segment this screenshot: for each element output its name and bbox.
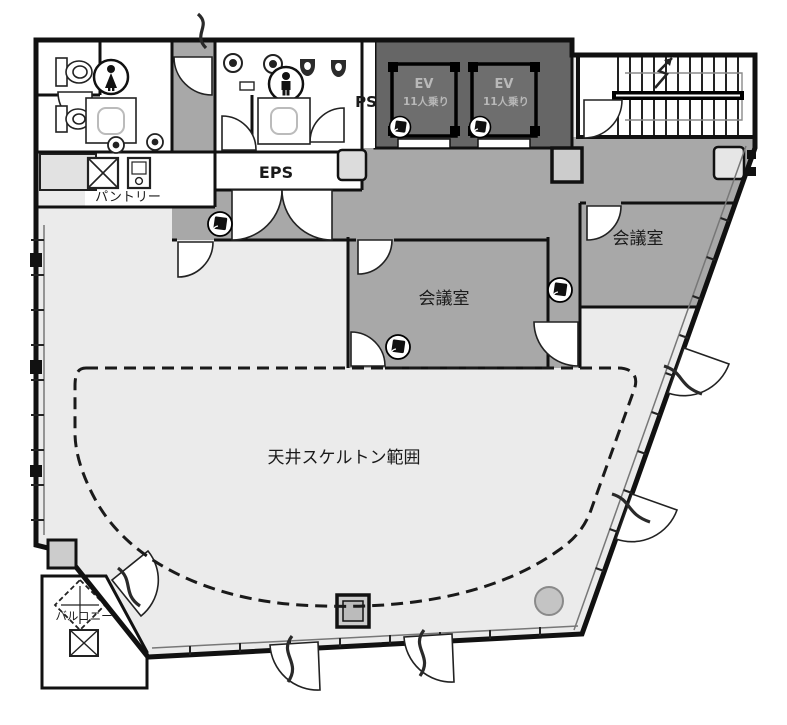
sink-icon [147,134,163,150]
dumbwaiter-box [88,158,118,188]
ps-label: PS [355,93,377,111]
balcony-drain-box [70,630,98,656]
pantry-sink [128,158,150,188]
sink-icon [108,137,124,153]
elevator-2-label: EV [495,77,514,92]
meeting-room-right-label: 会議室 [613,229,664,249]
security-icon [386,335,410,359]
elevator-1-label: EV [415,77,434,92]
security-icon [548,278,572,302]
pantry [88,158,150,188]
floor-plan-page: EV 11人乗り EV 11人乗り [0,0,787,725]
balcony-label: バルコニー [55,609,112,623]
accessible-stall [86,98,136,143]
ceiling-skeleton-label: 天井スケルトン範囲 [268,448,421,468]
eps-box [338,150,366,180]
column [48,540,76,568]
column [552,148,582,182]
eps-label: EPS [259,163,293,182]
sink-icon [224,54,242,72]
security-icon [390,117,411,138]
door-arc [270,642,320,690]
male-icon [269,67,303,101]
elevator-2: EV 11人乗り [468,62,540,148]
pantry-label: パントリー [95,190,161,205]
door-arc [404,634,454,682]
floor-plan: EV 11人乗り EV 11人乗り [0,0,787,725]
elevator-2-capacity: 11人乗り [483,95,529,108]
toilet-icon [56,58,92,86]
toilet-icon [56,106,90,132]
security-icon [208,212,232,236]
round-column [535,587,563,615]
female-icon [94,60,128,94]
elevator-hall: EV 11人乗り EV 11人乗り [375,40,572,148]
elevator-1: EV 11人乗り [388,62,460,148]
accessible-stall [258,98,310,144]
security-icon [470,117,491,138]
counter [240,82,254,90]
elevator-1-capacity: 11人乗り [403,95,449,108]
meeting-room-center-label: 会議室 [419,289,470,309]
